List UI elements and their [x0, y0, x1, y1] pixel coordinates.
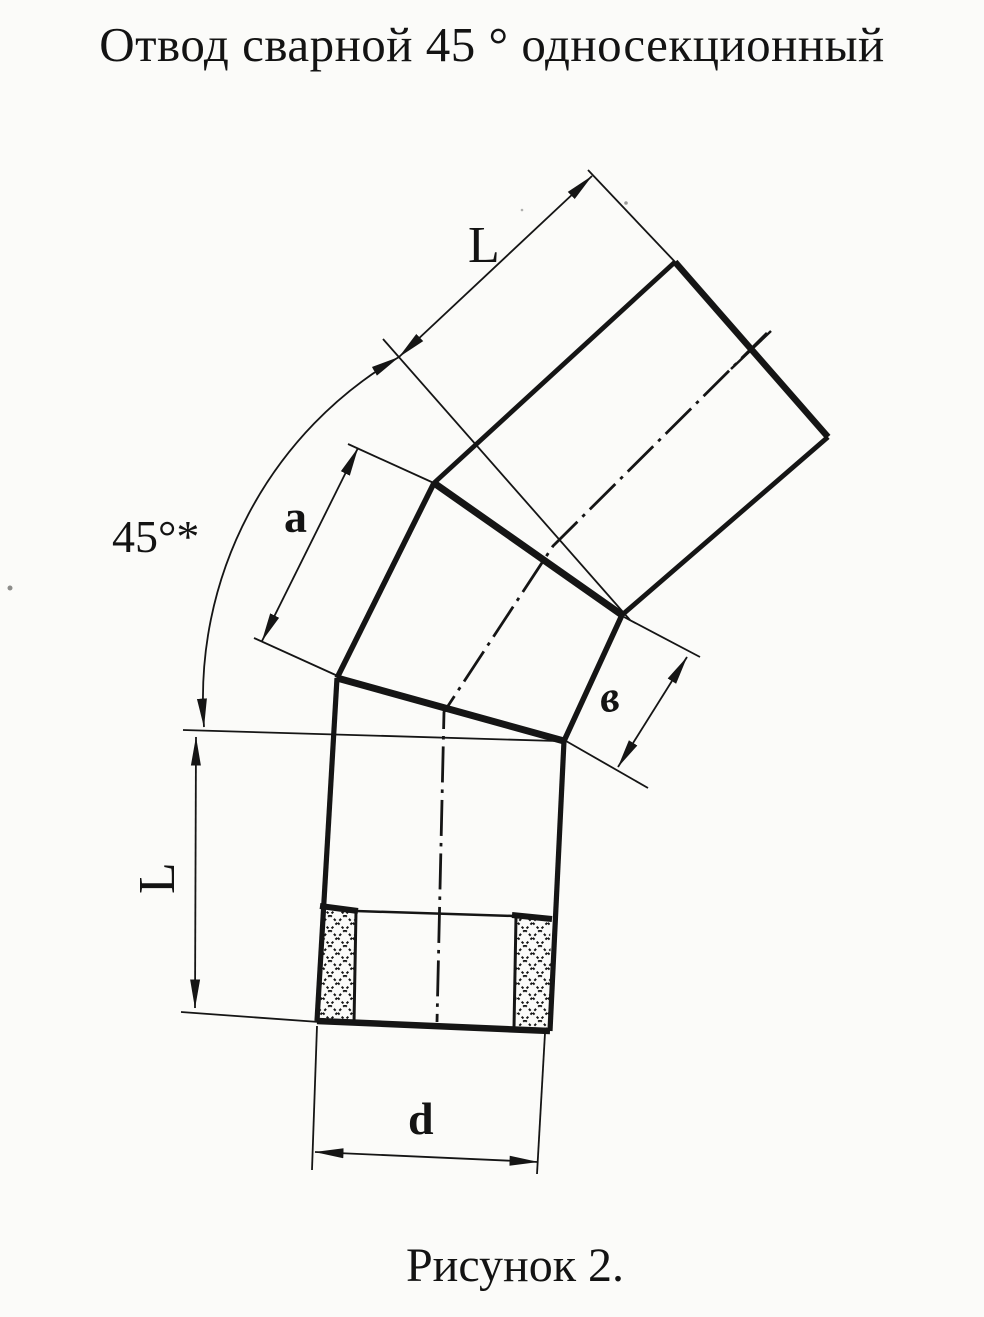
dim-label-d: d: [408, 1093, 434, 1144]
dim-label-v: в: [595, 671, 623, 723]
technical-drawing-page: Отвод сварной 45 ° односекционный: [0, 0, 984, 1317]
socket-top-line: [356, 911, 514, 916]
dim-label-upper-length: L: [468, 217, 500, 274]
extension-line-d-left: [312, 1026, 317, 1170]
lower-pipe-right-wall: [550, 741, 564, 1031]
wedge-outer-edge: [337, 483, 434, 678]
dim-line-lower-length: [195, 737, 196, 1008]
extension-line-v-bottom: [566, 741, 648, 788]
dim-label-a: a: [284, 491, 307, 542]
upper-pipe-right-wall: [622, 437, 828, 615]
socket-inner-right: [514, 917, 516, 1028]
scan-speck: [521, 209, 524, 212]
dim-line-d: [315, 1152, 538, 1162]
scan-speck: [8, 586, 13, 591]
upper-pipe-left-wall: [434, 262, 675, 483]
elbow-drawing-svg: L 45°* a в L d: [0, 0, 984, 1317]
reference-line-vertex: [183, 730, 557, 741]
extension-line-d-right: [537, 1033, 545, 1174]
socket-cap-right: [512, 915, 552, 919]
dim-line-a: [262, 448, 358, 641]
extension-line-a-top: [348, 444, 436, 484]
figure-caption: Рисунок 2.: [23, 1238, 984, 1293]
reference-line-bottom: [181, 1012, 319, 1022]
socket-inner-left: [354, 911, 356, 1023]
dim-label-lower-length: L: [129, 862, 186, 894]
weld-seam-lower: [337, 678, 564, 741]
cut-plane-line: [383, 339, 630, 620]
angle-arc-45: [203, 357, 399, 727]
hatch-right-wall-section: [515, 918, 552, 1028]
scan-speck: [624, 201, 628, 205]
extension-line-upper-corner: [588, 170, 677, 264]
extension-line-v-top: [624, 617, 700, 657]
extension-line-a-bottom: [254, 638, 340, 677]
upper-pipe-end-face: [675, 262, 828, 437]
dim-line-v: [618, 657, 687, 767]
angle-label: 45°*: [112, 511, 199, 562]
